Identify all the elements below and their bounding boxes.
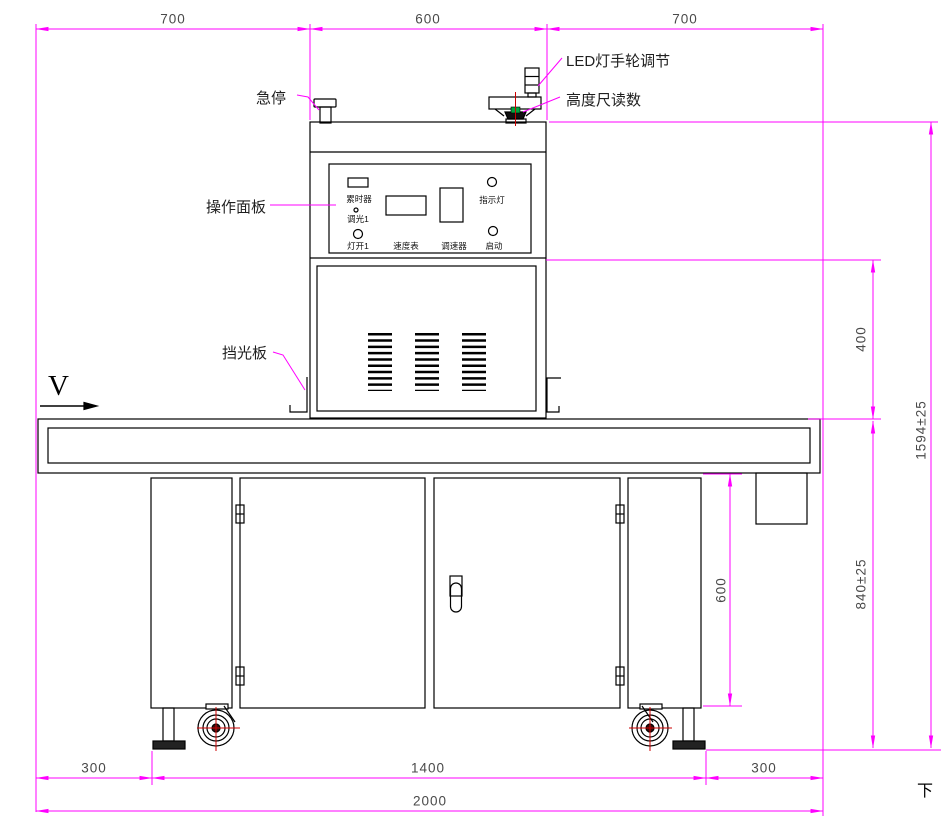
- emergency-stop-stem: [320, 107, 331, 123]
- view-direction-label: V: [48, 370, 69, 403]
- dim-bottom-left: 300: [81, 761, 107, 776]
- indicator-lamp: [488, 178, 497, 187]
- panel-label-speed-controller: 调速器: [441, 240, 467, 252]
- emergency-stop-button: [314, 99, 336, 107]
- extension-lines: [36, 24, 941, 816]
- callout-led-handwheel: LED灯手轮调节: [566, 50, 670, 71]
- panel-label-dimmer1: 调光1: [347, 213, 369, 225]
- door-hinges: [236, 505, 624, 685]
- lamp-on-button: [354, 230, 363, 239]
- dim-bottom-middle: 1400: [411, 761, 445, 776]
- panel-label-lamp-on1: 灯开1: [347, 240, 369, 252]
- conveyor-table: [38, 419, 820, 473]
- timer-window: [348, 178, 368, 187]
- drawing-linework: [0, 0, 944, 834]
- dim-cabinet-height: 600: [714, 577, 729, 603]
- leveling-foot-left: [153, 708, 185, 749]
- dim-bottom-right: 300: [751, 761, 777, 776]
- cabinet-left-panel: [151, 478, 232, 708]
- callout-height-gauge: 高度尺读数: [566, 89, 641, 110]
- dim-total-height: 1594±25: [914, 400, 929, 459]
- panel-label-speedometer: 速度表: [393, 240, 419, 252]
- dimmer-knob: [354, 208, 358, 212]
- technical-drawing-canvas: 700 600 700 300 1400 300 2000 400 840±25…: [0, 0, 944, 834]
- cabinet-right-panel: [628, 478, 701, 708]
- leveling-foot-right: [673, 708, 705, 749]
- door-handle-grip: [451, 583, 462, 612]
- disc-taper: [495, 109, 504, 116]
- callout-emergency-stop: 急停: [256, 87, 286, 108]
- start-button: [489, 227, 498, 236]
- dimension-lines: [36, 29, 931, 811]
- light-shield-right: [547, 378, 561, 412]
- handwheel-knob: [525, 68, 539, 93]
- callout-light-shield: 挡光板: [222, 342, 267, 363]
- panel-label-indicator: 指示灯: [479, 194, 505, 206]
- dim-top-right: 700: [672, 12, 698, 27]
- door-handle-plate: [450, 576, 462, 596]
- light-shield-left: [290, 377, 307, 412]
- machine-tower: [310, 122, 546, 418]
- sheet-mark: 下: [917, 777, 933, 801]
- speed-controller-window: [440, 188, 463, 222]
- dim-bottom-total: 2000: [413, 794, 447, 809]
- panel-label-timer: 累时器: [346, 193, 372, 205]
- dim-lamp-height: 400: [854, 326, 869, 352]
- direction-arrow: [40, 403, 97, 410]
- conveyor-belt: [48, 428, 810, 463]
- callout-operation-panel: 操作面板: [206, 196, 266, 217]
- panel-label-start: 启动: [485, 240, 502, 252]
- dim-table-height: 840±25: [854, 559, 869, 610]
- dim-top-middle: 600: [415, 12, 441, 27]
- dim-top-left: 700: [160, 12, 186, 27]
- speedometer-window: [386, 196, 426, 215]
- cabinet-door-left: [240, 478, 425, 708]
- utility-box: [756, 473, 807, 524]
- body-inner-panel: [317, 266, 536, 411]
